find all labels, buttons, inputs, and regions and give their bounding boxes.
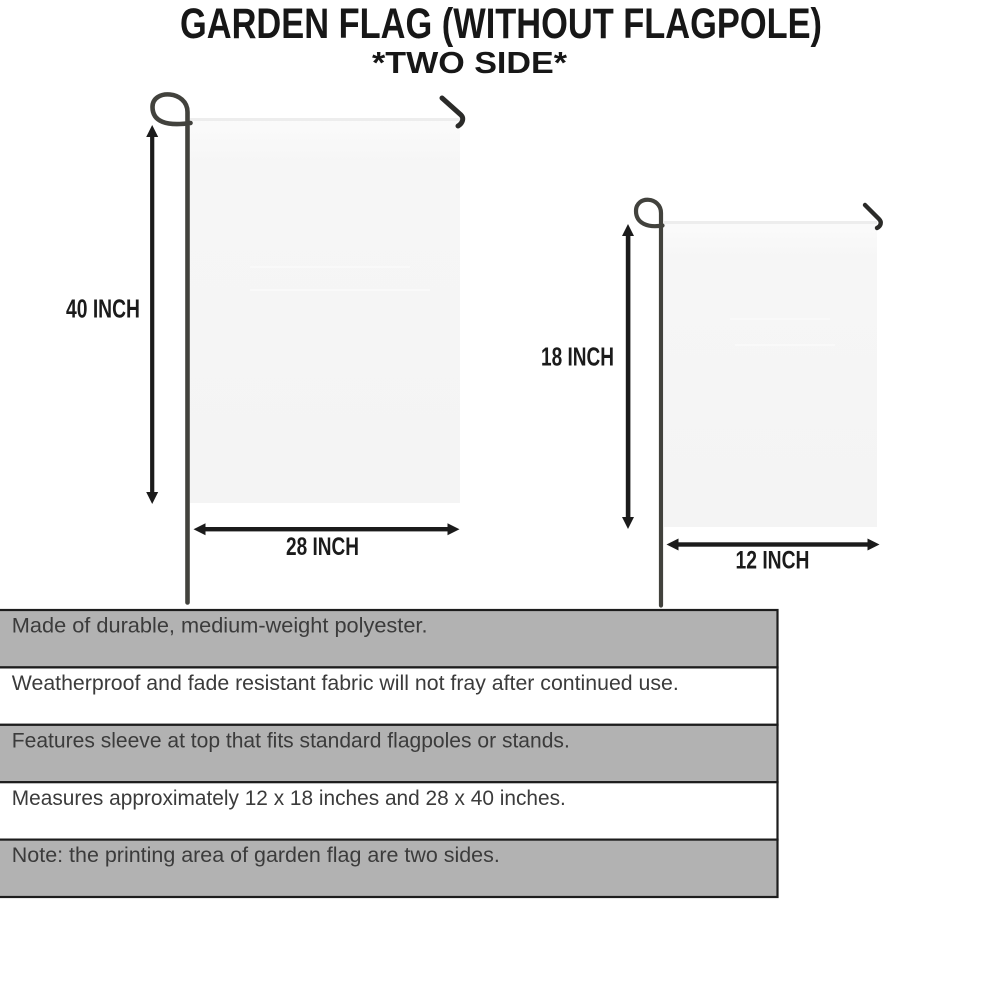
svg-text:40 INCH: 40 INCH [66, 294, 140, 324]
svg-text:Weatherproof and fade resistan: Weatherproof and fade resistant fabric w… [12, 672, 679, 695]
svg-text:Measures approximately 12 x 18: Measures approximately 12 x 18 inches an… [12, 787, 566, 810]
svg-text:Features sleeve at top that fi: Features sleeve at top that fits standar… [12, 729, 570, 752]
svg-text:Note: the printing area of gar: Note: the printing area of garden flag a… [12, 844, 500, 867]
svg-text:GARDEN FLAG (WITHOUT FLAGPOLE): GARDEN FLAG (WITHOUT FLAGPOLE) [180, 0, 822, 48]
svg-text:12 INCH: 12 INCH [736, 547, 810, 575]
svg-text:Made of durable, medium-weight: Made of durable, medium-weight polyester… [12, 615, 428, 638]
svg-text:18 INCH: 18 INCH [541, 342, 614, 372]
svg-text:28 INCH: 28 INCH [286, 533, 359, 561]
svg-text:*TWO SIDE*: *TWO SIDE* [372, 45, 568, 80]
